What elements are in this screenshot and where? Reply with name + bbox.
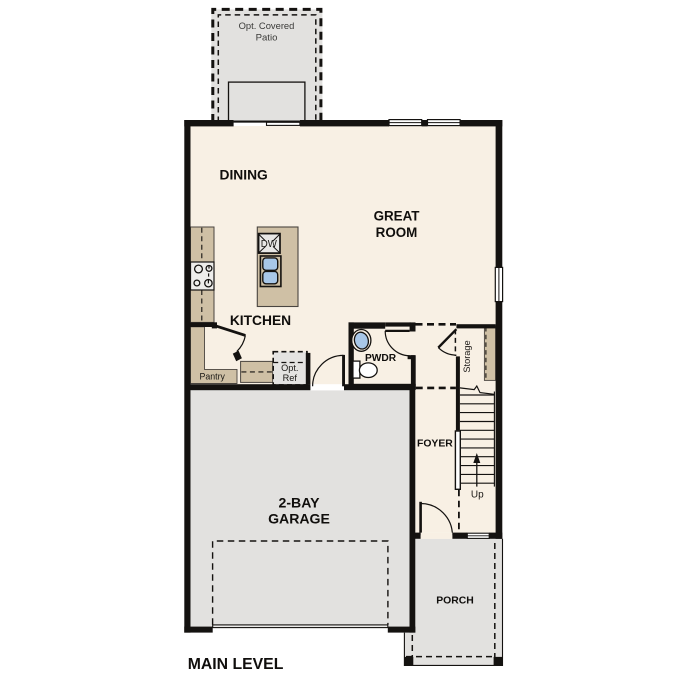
svg-text:Opt.: Opt. [281,363,298,373]
svg-text:GARAGE: GARAGE [268,510,330,526]
svg-text:DW: DW [261,239,278,250]
svg-text:PORCH: PORCH [436,595,474,606]
svg-text:Patio: Patio [256,32,278,43]
svg-text:Pantry: Pantry [200,371,226,381]
svg-text:Ref: Ref [283,373,298,383]
svg-text:Opt. Covered: Opt. Covered [239,20,295,31]
svg-text:DINING: DINING [220,168,268,183]
svg-text:KITCHEN: KITCHEN [230,313,291,328]
svg-text:FOYER: FOYER [417,438,453,449]
svg-text:2-BAY: 2-BAY [279,494,321,510]
svg-text:PWDR: PWDR [365,353,397,364]
svg-text:Storage: Storage [462,340,472,372]
svg-text:Up: Up [471,490,484,501]
svg-text:ROOM: ROOM [376,225,418,240]
svg-text:MAIN LEVEL: MAIN LEVEL [188,656,284,673]
svg-text:GREAT: GREAT [374,208,421,223]
